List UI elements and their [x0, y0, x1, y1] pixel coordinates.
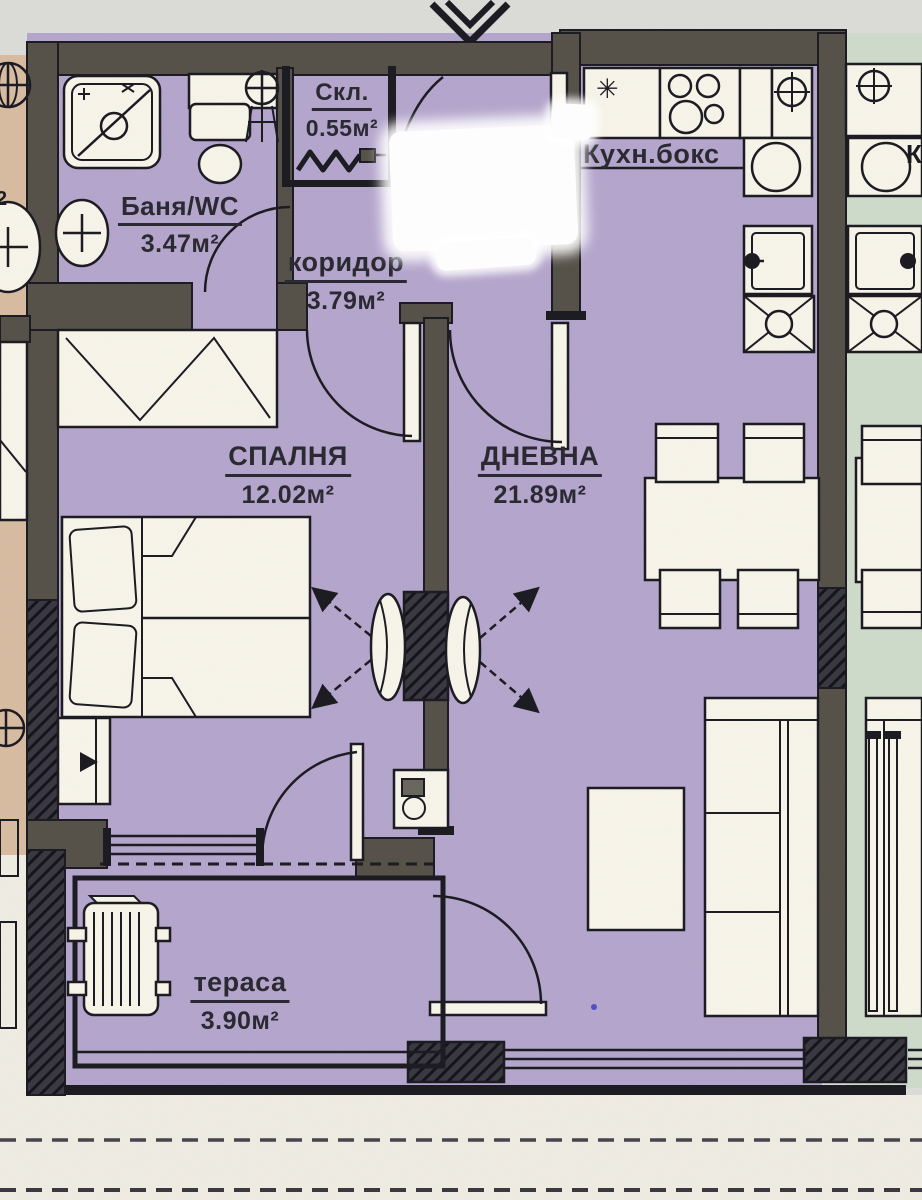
storage-area: 0.55м² [306, 116, 378, 141]
bathroom-area: 3.47м² [118, 231, 242, 259]
terrace-name: тераса [190, 968, 289, 1003]
floor-plan: Баня/WC 3.47м² Скл. 0.55м² коридор 3.79м… [0, 0, 922, 1200]
kitchen-star-icon: ✳ [596, 74, 619, 105]
whiteout-patch [388, 124, 578, 252]
bedroom-name: СПАЛНЯ [225, 442, 351, 477]
storage-name: Скл. [312, 80, 372, 111]
terrace-label: тераса 3.90м² [190, 968, 289, 1035]
living-room-label: ДНЕВНА 21.89м² [478, 442, 602, 509]
kitchen-label: Кухн.бокс [583, 139, 720, 170]
corridor-name: коридор [285, 248, 407, 283]
living-room-name: ДНЕВНА [478, 442, 602, 477]
bathroom-label: Баня/WC 3.47м² [118, 192, 242, 258]
bedroom-label: СПАЛНЯ 12.02м² [225, 442, 351, 509]
terrace-area: 3.90м² [190, 1008, 289, 1036]
corridor-area: 3.79м² [285, 288, 407, 316]
whiteout-patch-corner [550, 103, 594, 141]
bathroom-name: Баня/WC [118, 192, 242, 226]
storage-label: Скл. 0.55м² [306, 80, 378, 142]
bedroom-area: 12.02м² [225, 482, 351, 510]
left-neighbor-area-fragment: 2 [0, 188, 7, 211]
right-neighbor-label-fragment: К [906, 139, 922, 170]
living-room-area: 21.89м² [478, 482, 602, 510]
corridor-label: коридор 3.79м² [285, 248, 407, 315]
